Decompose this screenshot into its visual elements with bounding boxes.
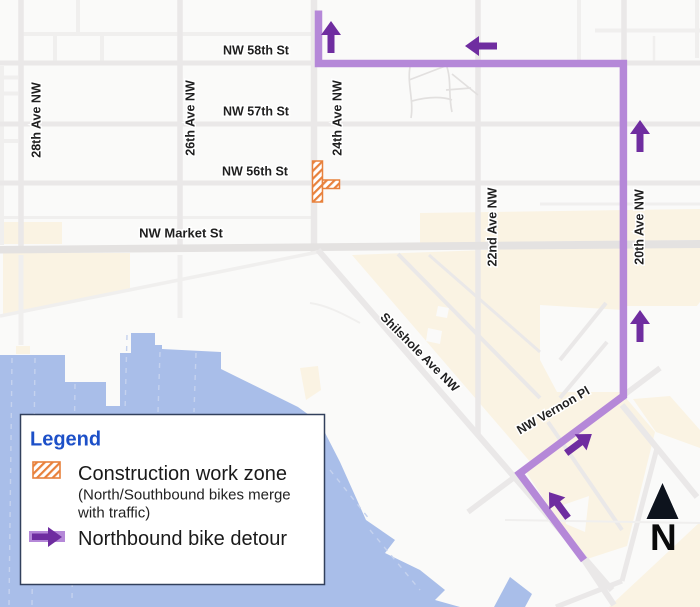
svg-text:26th Ave NW: 26th Ave NW <box>184 80 198 156</box>
svg-text:Northbound bike detour: Northbound bike detour <box>78 528 287 550</box>
svg-text:22nd Ave NW: 22nd Ave NW <box>486 187 500 266</box>
svg-text:28th Ave NW: 28th Ave NW <box>30 82 44 158</box>
svg-text:N: N <box>650 517 677 558</box>
svg-text:20th Ave NW: 20th Ave NW <box>633 189 647 265</box>
svg-text:with traffic): with traffic) <box>77 505 150 522</box>
svg-text:NW 56th St: NW 56th St <box>222 165 289 179</box>
svg-text:24th Ave NW: 24th Ave NW <box>331 80 345 156</box>
svg-text:NW 58th St: NW 58th St <box>223 44 290 58</box>
svg-text:Legend: Legend <box>30 429 101 451</box>
svg-text:(North/Southbound bikes merge: (North/Southbound bikes merge <box>78 487 291 504</box>
svg-text:Construction work zone: Construction work zone <box>78 463 287 485</box>
svg-text:NW Market St: NW Market St <box>139 226 223 241</box>
svg-text:NW 57th St: NW 57th St <box>223 105 290 119</box>
